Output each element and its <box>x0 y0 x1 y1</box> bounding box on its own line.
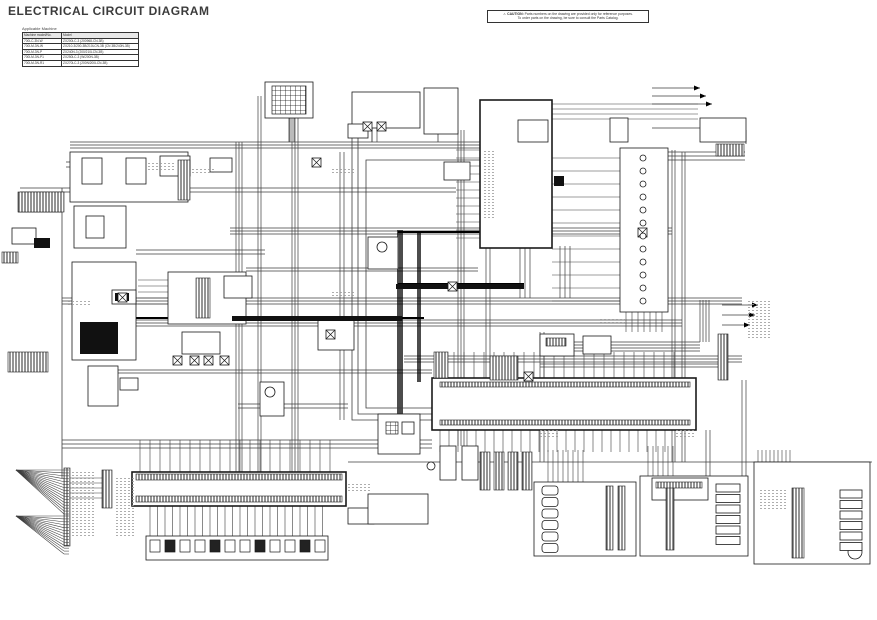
caution-note: ⚠ CAUTION: Parts numbers on the drawing … <box>487 10 649 23</box>
component-block <box>126 158 146 184</box>
connector-strip <box>490 356 518 380</box>
sensor-circle <box>640 298 646 304</box>
label-text-cluster <box>330 168 356 174</box>
terminal-box <box>716 526 740 534</box>
solid-component <box>80 322 118 354</box>
fanout-bundle <box>16 470 64 514</box>
component-block <box>583 336 611 354</box>
fuse-grid <box>386 422 398 434</box>
component-block <box>518 120 548 142</box>
label-text-cluster <box>600 318 626 324</box>
applicable-machine-table: Applicable Machine Machine model/No. Mod… <box>22 26 139 67</box>
component-block <box>462 446 478 480</box>
component-block <box>700 118 746 142</box>
component-block <box>88 366 118 406</box>
label-text-cluster <box>348 482 372 492</box>
arrow-mark <box>694 86 700 91</box>
connector-strip <box>434 352 448 378</box>
label-text-cluster <box>190 168 214 174</box>
sensor-circle <box>377 242 387 252</box>
connector-strip <box>606 486 613 550</box>
table-row: 700LM-3N-WZX210-3/200-3B/210LCN-3B (CN 3… <box>23 44 139 50</box>
component-block <box>12 228 36 244</box>
component-block <box>652 478 708 500</box>
connector-strip <box>522 452 532 490</box>
component-block <box>318 320 354 350</box>
caution-label: CAUTION: <box>507 12 524 16</box>
sensor-circle <box>640 194 646 200</box>
bottom-component <box>210 540 220 552</box>
sensor-circle <box>640 155 646 161</box>
component-block <box>402 422 414 434</box>
page-title: ELECTRICAL CIRCUIT DIAGRAM <box>8 4 209 18</box>
terminal-box <box>840 501 862 509</box>
caution-line2: To order parts on the drawing, be sure t… <box>518 16 619 20</box>
connector-strip <box>716 144 744 156</box>
label-text-cluster <box>114 476 136 536</box>
sensor-circle <box>640 181 646 187</box>
terminal-box <box>840 532 862 540</box>
warning-icon: ⚠ <box>503 12 506 16</box>
terminal-box <box>542 521 558 530</box>
terminal-box <box>542 509 558 518</box>
component-block <box>120 378 138 390</box>
connector-strip <box>2 252 18 263</box>
circuit-diagram-page: { "header": { "title": "ELECTRICAL CIRCU… <box>0 0 877 620</box>
fanout-bundle <box>16 470 64 496</box>
connector-strip <box>656 482 702 488</box>
component-block <box>82 158 102 184</box>
connector-strip <box>196 278 210 318</box>
connector-strip <box>64 468 70 546</box>
bottom-component <box>225 540 235 552</box>
bottom-component <box>315 540 325 552</box>
bottom-component <box>255 540 265 552</box>
connector-strip <box>792 488 804 558</box>
solid-component <box>554 176 564 186</box>
component-block <box>610 118 628 142</box>
solid-component <box>396 284 524 289</box>
table-cell: ZX210-3/200-3B/210LCN-3B (CN 3B/240N-3B) <box>62 44 139 50</box>
terminal-box <box>542 532 558 541</box>
table-cell: 700LM-3N-R1 <box>23 60 62 66</box>
connector-strip <box>102 470 112 508</box>
component-block <box>224 276 252 298</box>
bottom-component <box>270 540 280 552</box>
terminal-box <box>716 495 740 503</box>
label-text-cluster <box>482 150 496 220</box>
arrow-mark <box>700 94 706 99</box>
terminal-box <box>716 537 740 545</box>
bottom-component <box>285 540 295 552</box>
sensor-circle <box>265 387 275 397</box>
label-text-cluster <box>540 430 560 438</box>
bottom-component <box>150 540 160 552</box>
component-block <box>86 216 104 238</box>
connector-strip <box>666 484 674 550</box>
terminal-box <box>716 505 740 513</box>
fanout-bundle <box>16 516 64 542</box>
solid-component <box>232 316 402 321</box>
fanout-bundle <box>16 470 64 511</box>
sensor-circle <box>640 259 646 265</box>
component-block <box>440 446 456 480</box>
terminal-box <box>840 490 862 498</box>
label-text-cluster <box>330 290 354 296</box>
connector-strip <box>18 192 64 212</box>
bottom-component <box>180 540 190 552</box>
wire-route <box>358 134 432 414</box>
terminal-box <box>542 498 558 507</box>
component-block <box>424 88 458 134</box>
bottom-component <box>300 540 310 552</box>
applicable-machine-caption: Applicable Machine <box>22 26 139 31</box>
sensor-circle <box>640 220 646 226</box>
label-text-cluster <box>68 300 90 306</box>
circuit-schematic <box>0 0 877 620</box>
label-text-cluster <box>676 430 696 438</box>
component-block <box>368 494 428 524</box>
fanout-bundle <box>16 516 64 539</box>
connector-strip <box>618 486 625 550</box>
component-block <box>444 162 470 180</box>
fuse-grid <box>272 86 306 114</box>
bottom-component <box>195 540 205 552</box>
terminal-box <box>840 522 862 530</box>
terminal-box <box>840 543 862 551</box>
sensor-circle <box>640 168 646 174</box>
connector-strip <box>546 338 566 346</box>
terminal-box <box>716 484 740 492</box>
fanout-bundle <box>16 470 64 493</box>
table-row: 700LM-3N-R1ZX270LC-3 (200N/200LCN-3B) <box>23 60 139 66</box>
connector-strip <box>136 474 342 480</box>
terminal-box <box>840 511 862 519</box>
component-block <box>182 332 220 354</box>
caution-line1: Parts numbers on the drawing are provide… <box>525 12 633 16</box>
sensor-circle <box>427 462 435 470</box>
sensor-circle <box>640 207 646 213</box>
connector-strip <box>136 496 342 502</box>
connector-strip <box>718 334 728 380</box>
label-text-cluster <box>70 472 96 538</box>
connector-strip <box>494 452 504 490</box>
sensor-circle <box>640 272 646 278</box>
connector-strip <box>440 420 690 425</box>
connector-strip <box>8 352 48 372</box>
arrow-mark <box>706 102 712 107</box>
connector-strip <box>480 452 490 490</box>
connector-strip <box>508 452 518 490</box>
table-cell: ZX270LC-3 (200N/200LCN-3B) <box>62 60 139 66</box>
solid-component <box>34 238 50 248</box>
connector-strip <box>440 382 690 387</box>
terminal-box <box>716 516 740 524</box>
sensor-circle <box>640 233 646 239</box>
bottom-component <box>240 540 250 552</box>
label-text-cluster <box>748 300 770 340</box>
terminal-box <box>542 544 558 553</box>
label-text-cluster <box>760 488 786 510</box>
sensor-circle <box>640 246 646 252</box>
label-text-cluster <box>146 162 176 170</box>
sensor-circle <box>640 285 646 291</box>
terminal-box <box>542 486 558 495</box>
bottom-component <box>165 540 175 552</box>
connector-strip <box>178 160 190 200</box>
